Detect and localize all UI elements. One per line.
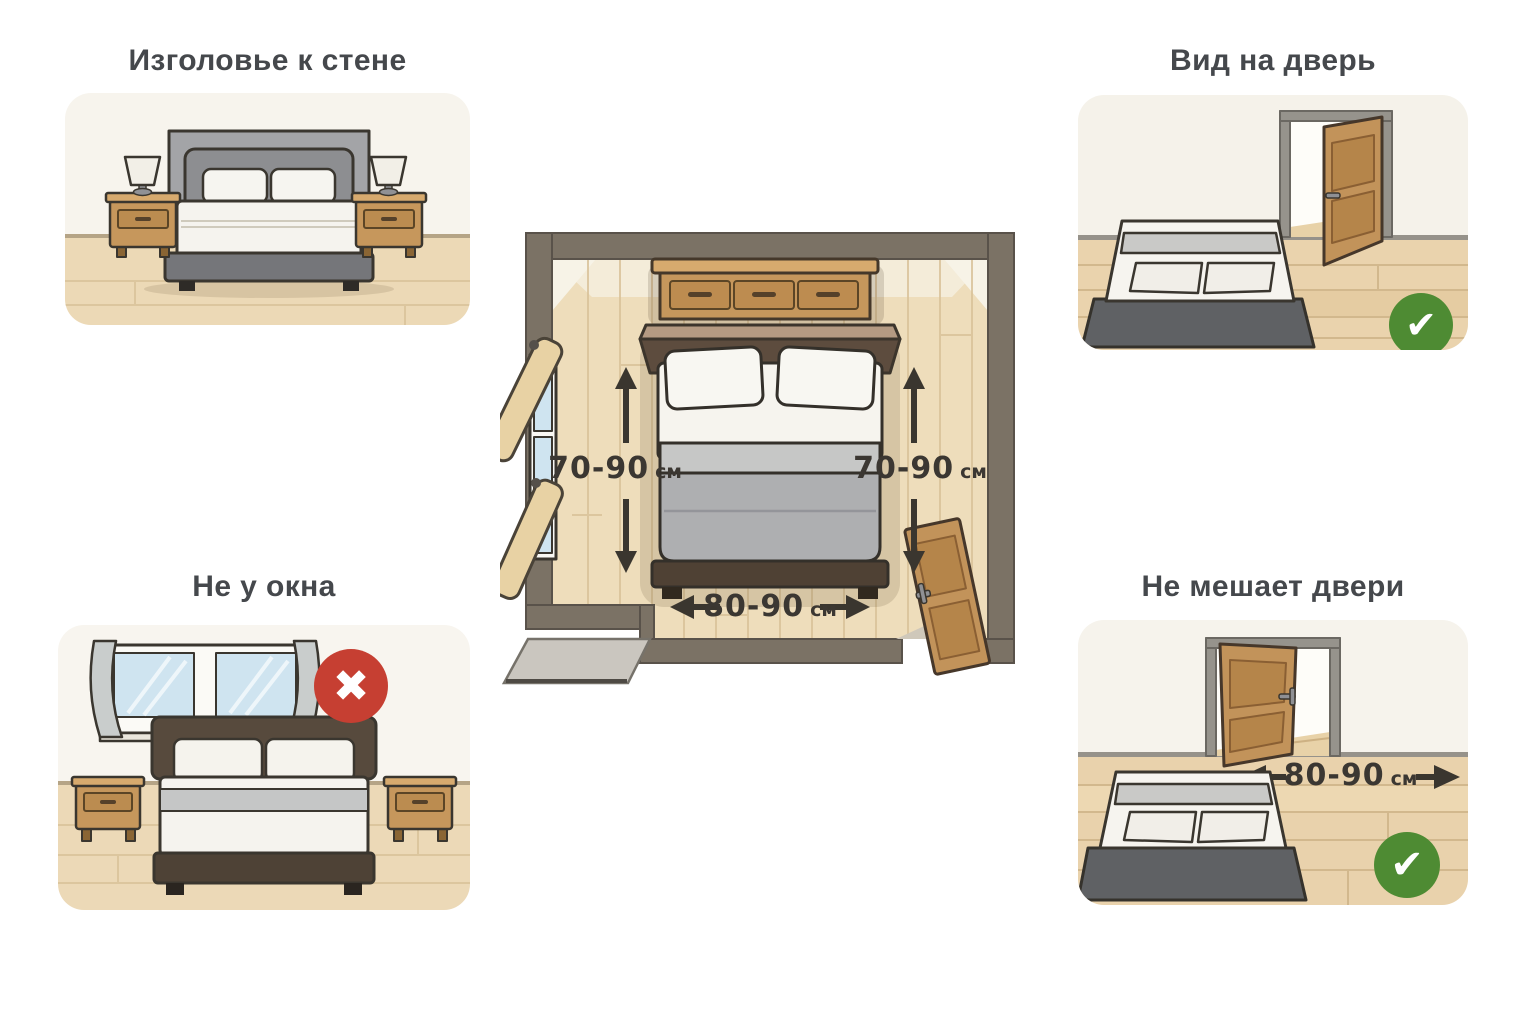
card-not-blocking-door: 80-90 см ✔: [1078, 620, 1468, 905]
bed-illustration: [165, 131, 373, 291]
card-view-of-door: ✔: [1078, 95, 1468, 350]
left-clearance-label: 70-90 см: [555, 451, 675, 486]
entry-slab: [504, 639, 650, 683]
dresser: [648, 259, 884, 325]
clearance-value: 70-90: [548, 451, 649, 486]
door-illustration: [1206, 638, 1340, 766]
check-icon: ✔: [1374, 832, 1440, 898]
clearance-value: 80-90: [703, 589, 804, 624]
bedroom-layout-infographic: { "panels": { "top_left": { "title": "Из…: [0, 0, 1536, 1024]
clearance-unit: см: [960, 461, 987, 483]
bed-illustration: [1082, 221, 1314, 347]
door-clearance-label: 80-90 см: [1283, 758, 1418, 793]
clearance-value: 70-90: [853, 451, 954, 486]
bed-illustration: [1078, 772, 1306, 900]
cross-icon: ✖: [314, 649, 388, 723]
title-not-by-window: Не у окна: [58, 570, 470, 604]
nightstand-right: [352, 193, 426, 257]
nightstand-left: [106, 193, 180, 257]
title-headboard-to-wall: Изголовье к стене: [65, 44, 470, 78]
card-not-by-window: ✖: [58, 625, 470, 910]
card-headboard-to-wall: [65, 93, 470, 325]
title-not-blocking-door: Не мешает двери: [1078, 570, 1468, 604]
bedroom-front-illustration: [65, 93, 470, 325]
floor-plan: 70-90 см 70-90 см 80-90 см: [500, 215, 1040, 685]
check-icon: ✔: [1389, 293, 1453, 350]
clearance-value: 80-90: [1284, 758, 1385, 793]
clearance-unit: см: [810, 599, 837, 621]
clearance-unit: см: [655, 461, 682, 483]
bed-illustration: [152, 717, 376, 895]
right-clearance-label: 70-90 см: [855, 451, 985, 486]
bed-under-window-illustration: [58, 625, 470, 910]
bottom-clearance-label: 80-90 см: [710, 589, 830, 624]
title-view-of-door: Вид на дверь: [1078, 44, 1468, 78]
clearance-unit: см: [1391, 768, 1418, 790]
